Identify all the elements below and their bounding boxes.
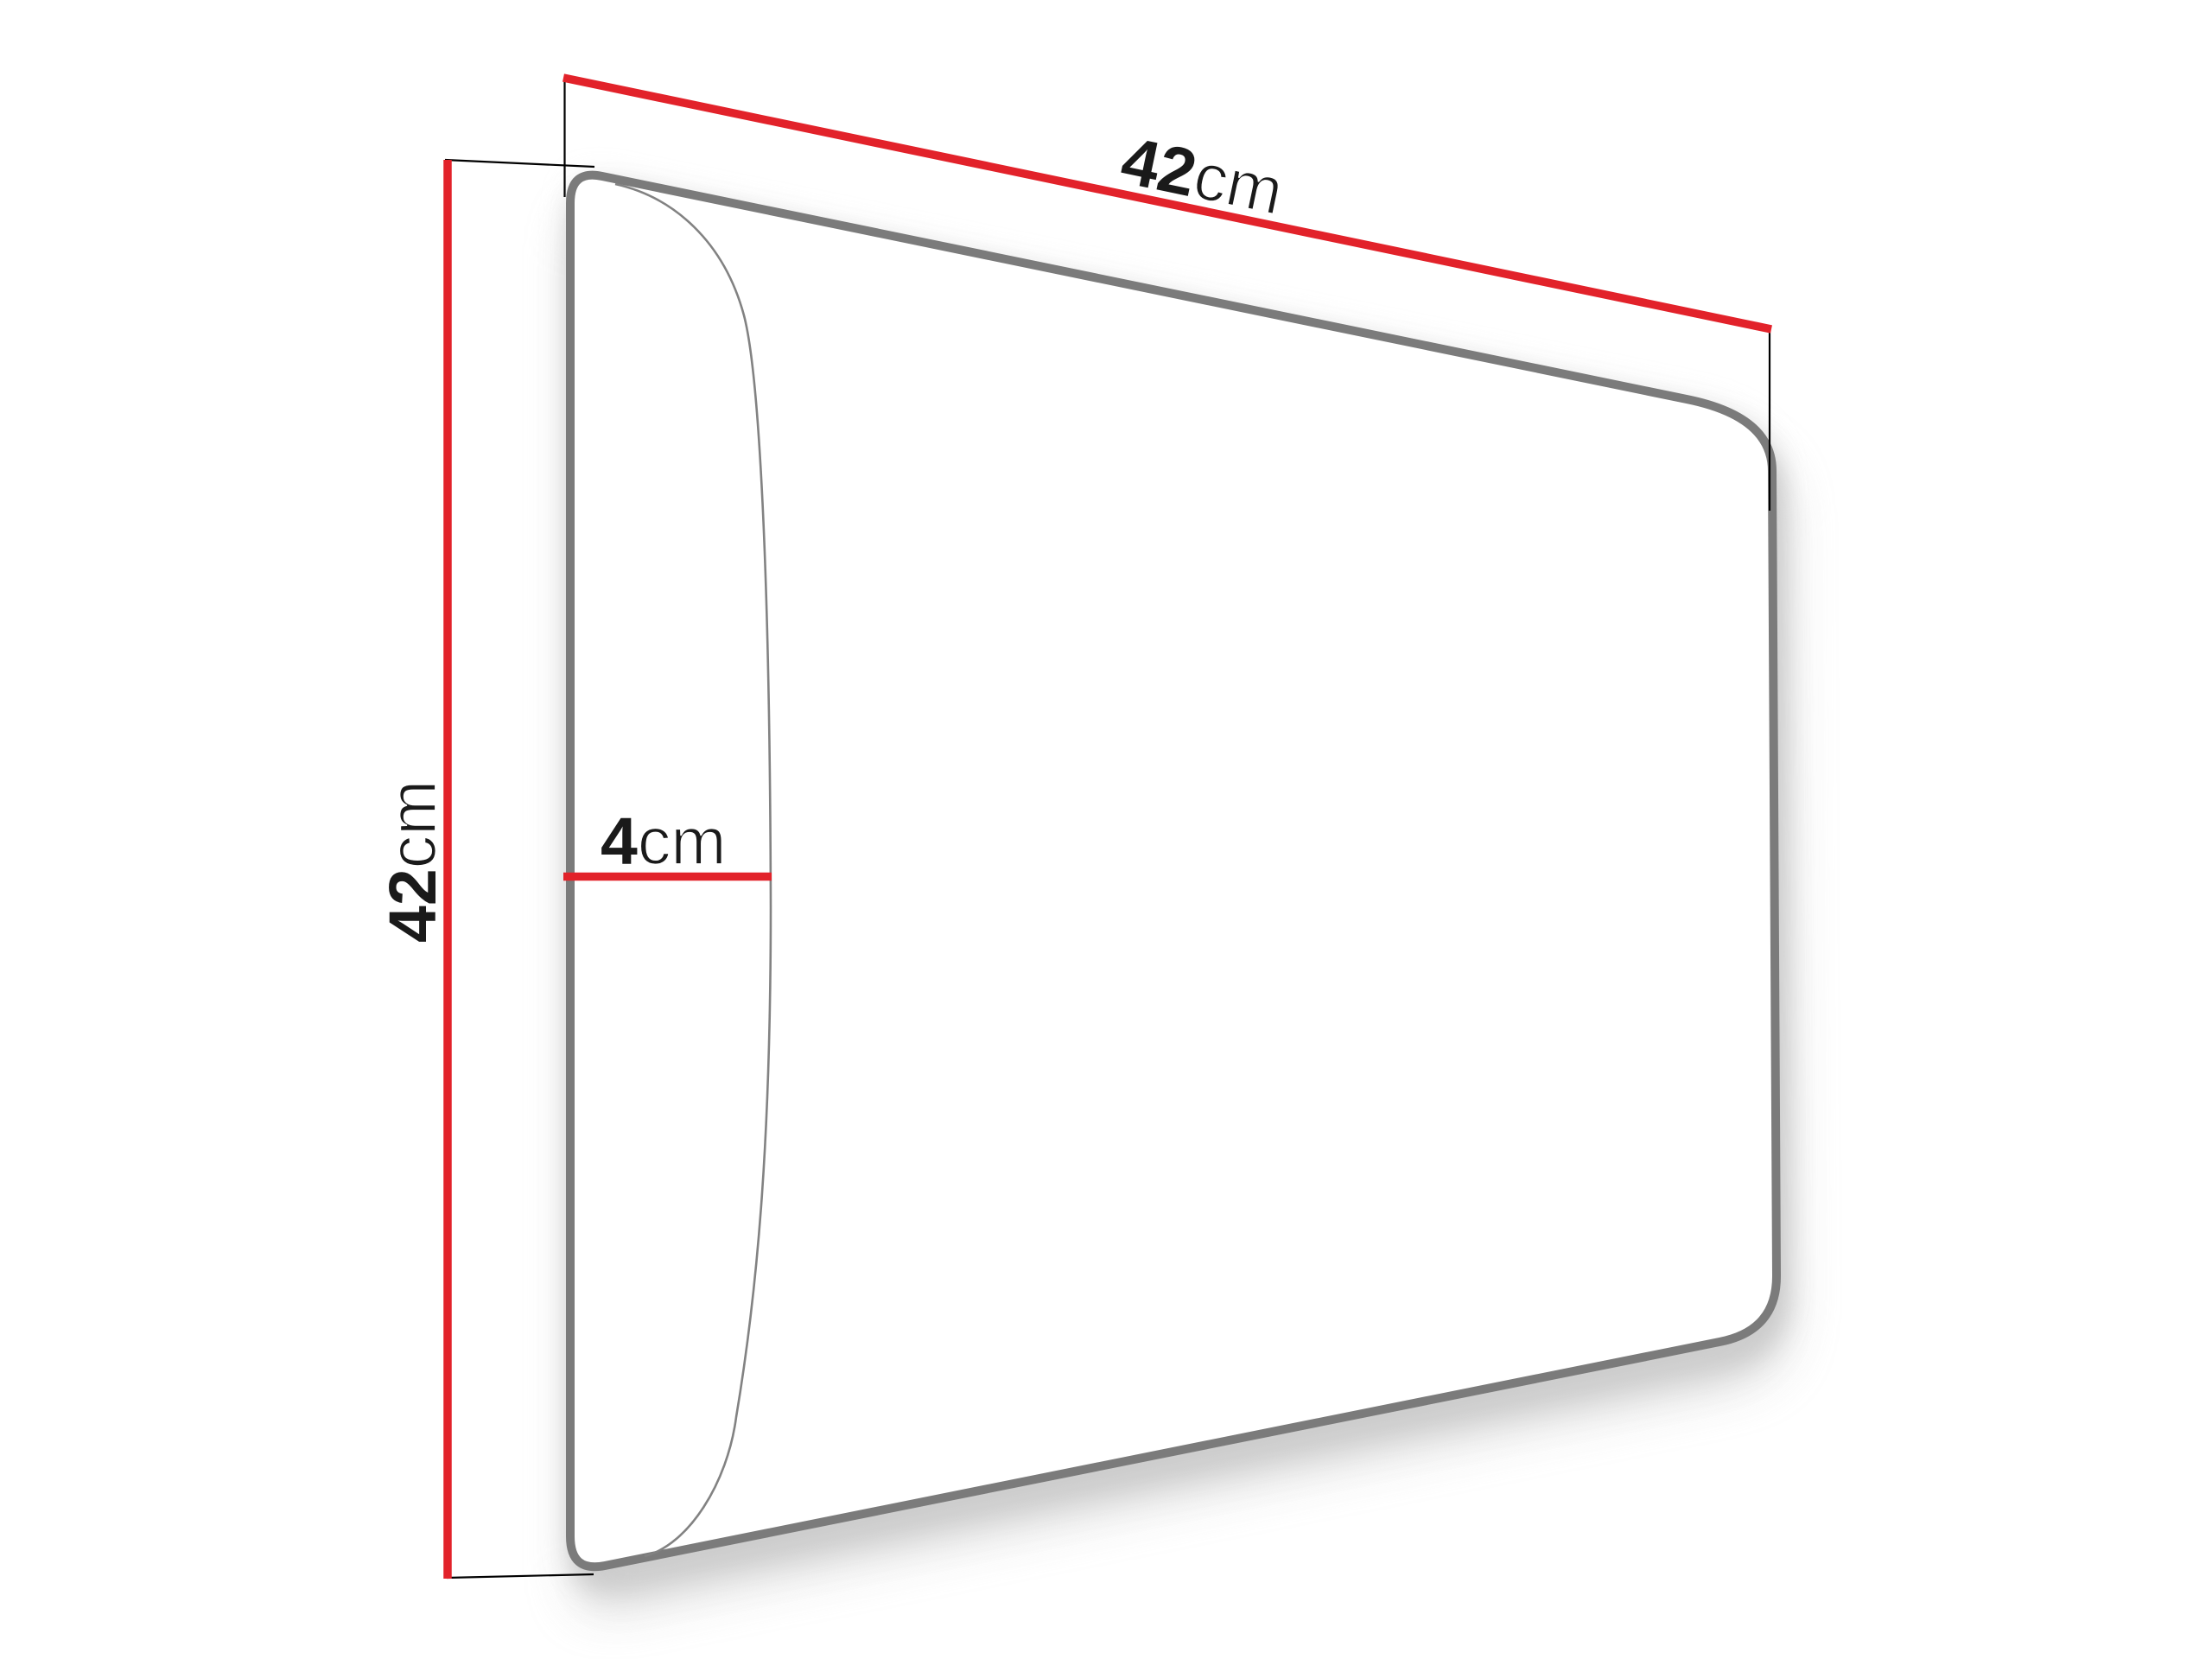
svg-text:4cm: 4cm: [601, 804, 726, 879]
svg-text:42cm: 42cm: [376, 780, 450, 943]
